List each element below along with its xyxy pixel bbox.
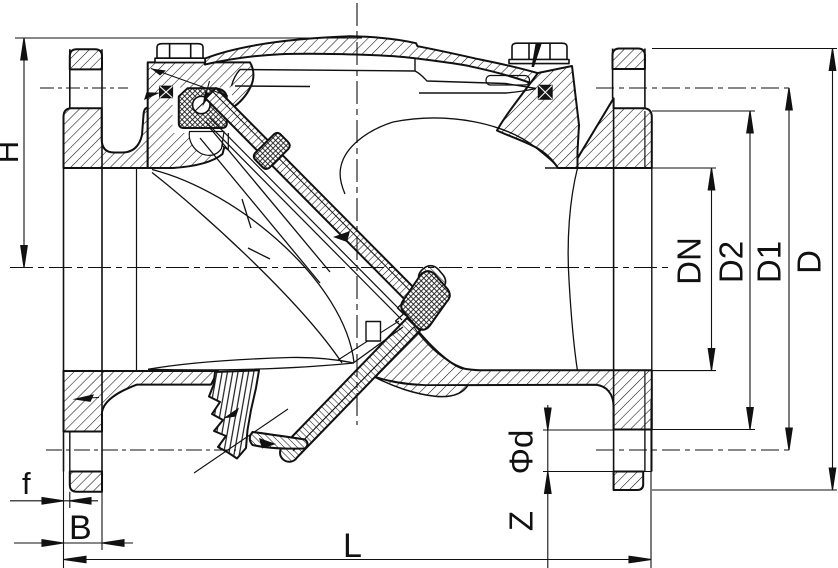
svg-text:D2: D2 <box>713 241 750 283</box>
svg-text:D: D <box>791 250 828 274</box>
svg-text:H: H <box>0 141 25 163</box>
svg-text:B: B <box>69 509 92 547</box>
svg-text:f: f <box>22 466 31 501</box>
svg-text:D1: D1 <box>751 241 788 283</box>
svg-text:DN: DN <box>671 237 708 285</box>
svg-text:Φd: Φd <box>503 430 540 475</box>
svg-text:L: L <box>343 527 362 565</box>
svg-text:Z: Z <box>503 511 540 531</box>
